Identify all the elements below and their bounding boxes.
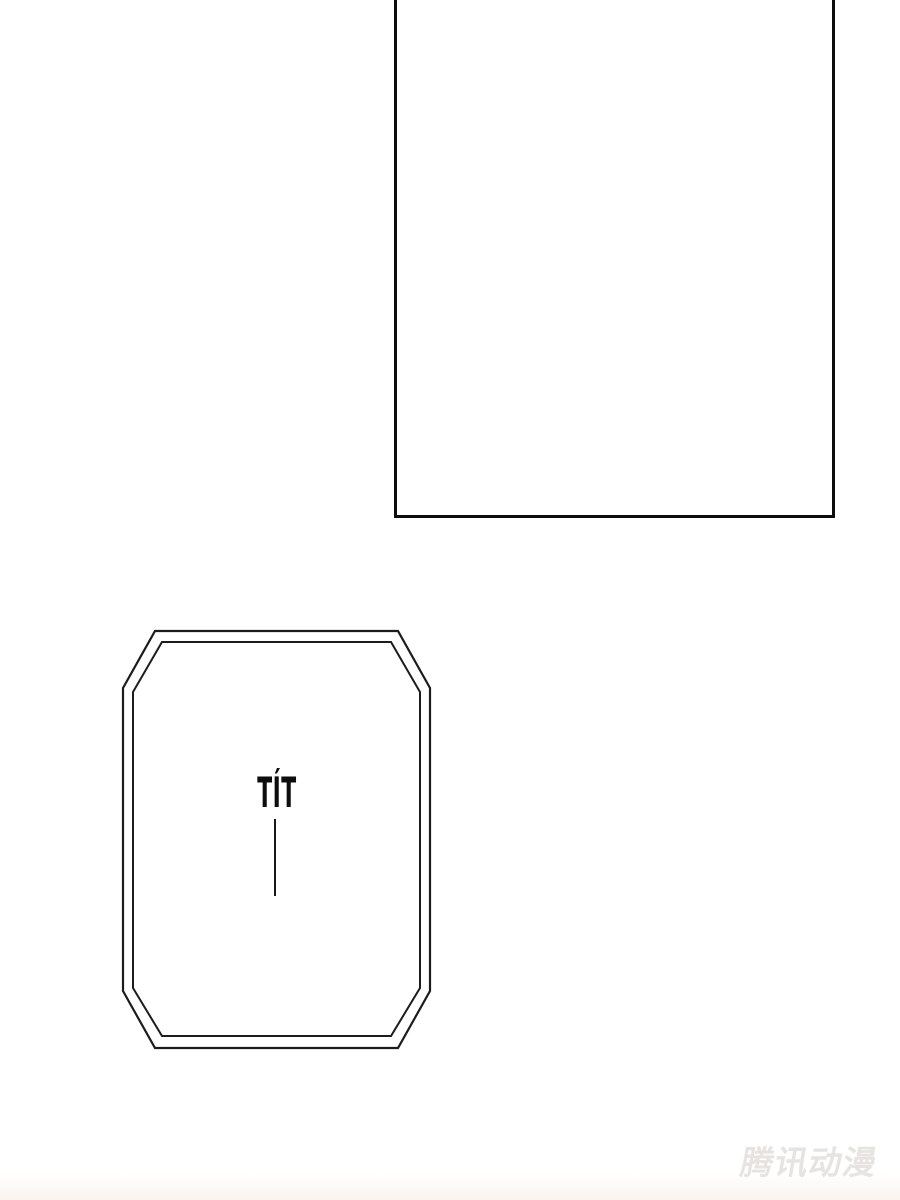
sfx-wrap: TÍT	[177, 772, 377, 814]
octagon-borders	[120, 628, 434, 1052]
publisher-watermark: 腾讯动漫	[738, 1143, 900, 1183]
panel-top-rectangle	[394, 0, 835, 518]
sfx-text: TÍT	[257, 772, 296, 814]
sfx-leader-line	[274, 819, 276, 896]
comic-page: TÍT 腾讯动漫	[0, 0, 900, 1200]
octagon-inner-border	[133, 642, 420, 1036]
panel-octagon	[120, 628, 434, 1052]
